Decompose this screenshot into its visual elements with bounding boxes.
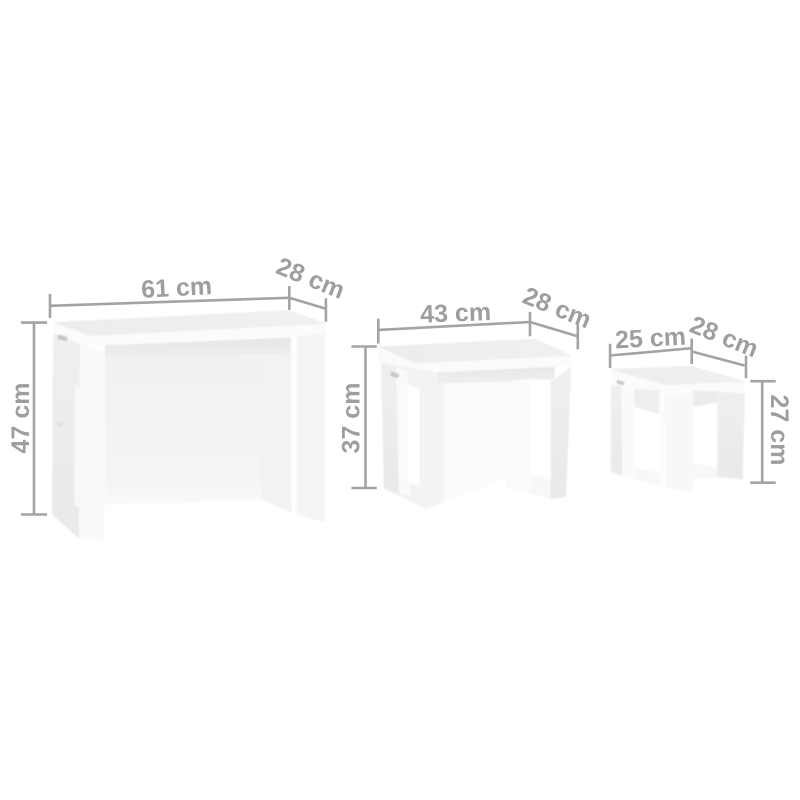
svg-text:47 cm: 47 cm bbox=[7, 383, 35, 454]
svg-text:27 cm: 27 cm bbox=[765, 395, 793, 466]
svg-text:43 cm: 43 cm bbox=[420, 298, 492, 328]
svg-text:37 cm: 37 cm bbox=[338, 383, 366, 454]
svg-text:25 cm: 25 cm bbox=[614, 323, 686, 355]
svg-text:61 cm: 61 cm bbox=[140, 272, 212, 304]
